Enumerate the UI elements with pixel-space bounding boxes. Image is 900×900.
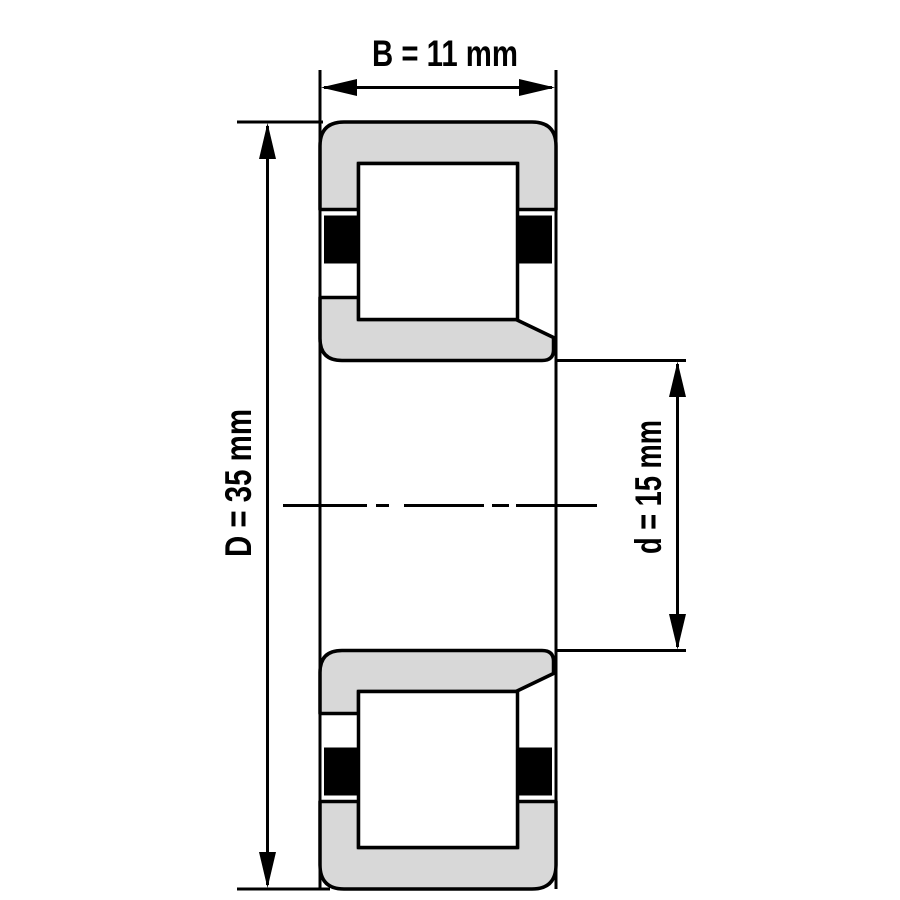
dimension-d-bore-arrow-bottom: [669, 614, 686, 650]
roller-bottom: [359, 692, 518, 848]
dimension-b: B = 11 mm: [321, 33, 555, 96]
dimension-b-label: B = 11 mm: [372, 33, 518, 74]
cage-left-bottom: [324, 748, 358, 796]
dimension-b-arrow-right: [519, 79, 555, 96]
dimension-d-outer-arrow-top: [259, 123, 276, 159]
dimension-d-bore-label: d = 15 mm: [628, 420, 669, 554]
bearing-drawing-page: B = 11 mm D = 35 mm d = 15 mm: [0, 0, 900, 900]
dimension-d-bore-arrow-top: [669, 362, 686, 398]
cage-right-top: [518, 216, 552, 264]
bearing-cross-section-diagram: B = 11 mm D = 35 mm d = 15 mm: [0, 0, 900, 900]
cage-right-bottom: [518, 748, 552, 796]
dimension-b-arrow-left: [321, 79, 357, 96]
roller-top: [359, 164, 518, 320]
cage-left-top: [324, 216, 358, 264]
dimension-d-outer-arrow-bottom: [259, 852, 276, 888]
dimension-d-outer-label: D = 35 mm: [218, 409, 259, 557]
